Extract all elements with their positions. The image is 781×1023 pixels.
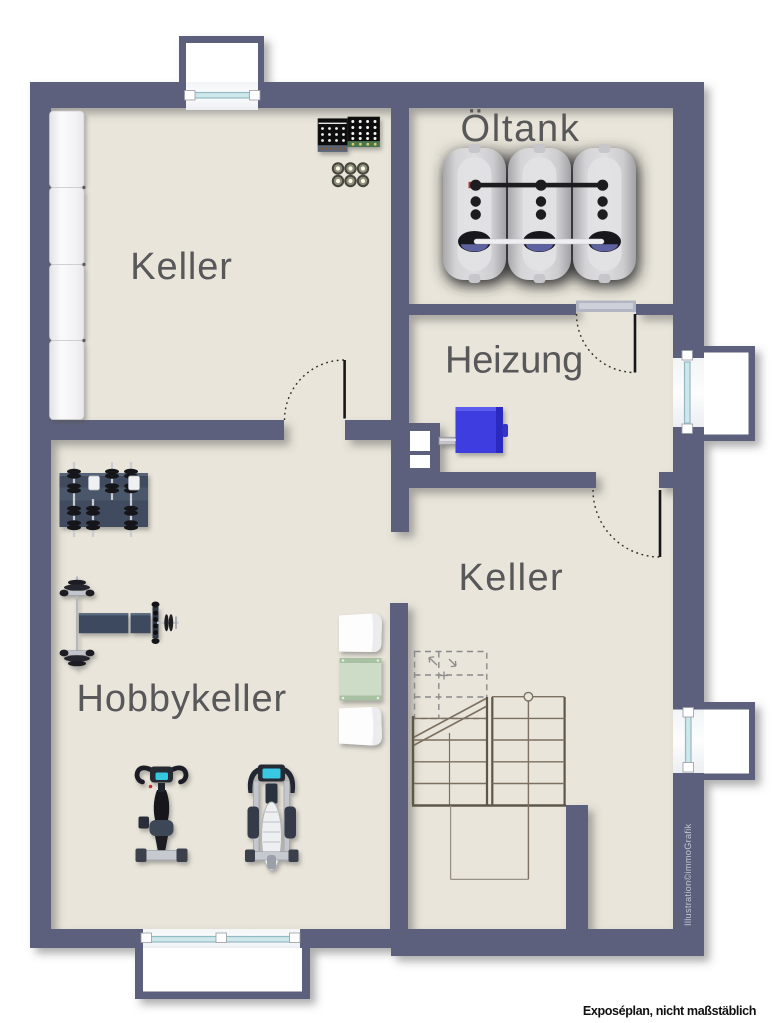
svg-text:Heizung: Heizung (445, 340, 583, 382)
svg-text:Keller: Keller (130, 246, 233, 288)
svg-text:Keller: Keller (459, 557, 565, 599)
svg-text:Öltank: Öltank (461, 108, 581, 150)
svg-text:Hobbykeller: Hobbykeller (77, 678, 288, 720)
